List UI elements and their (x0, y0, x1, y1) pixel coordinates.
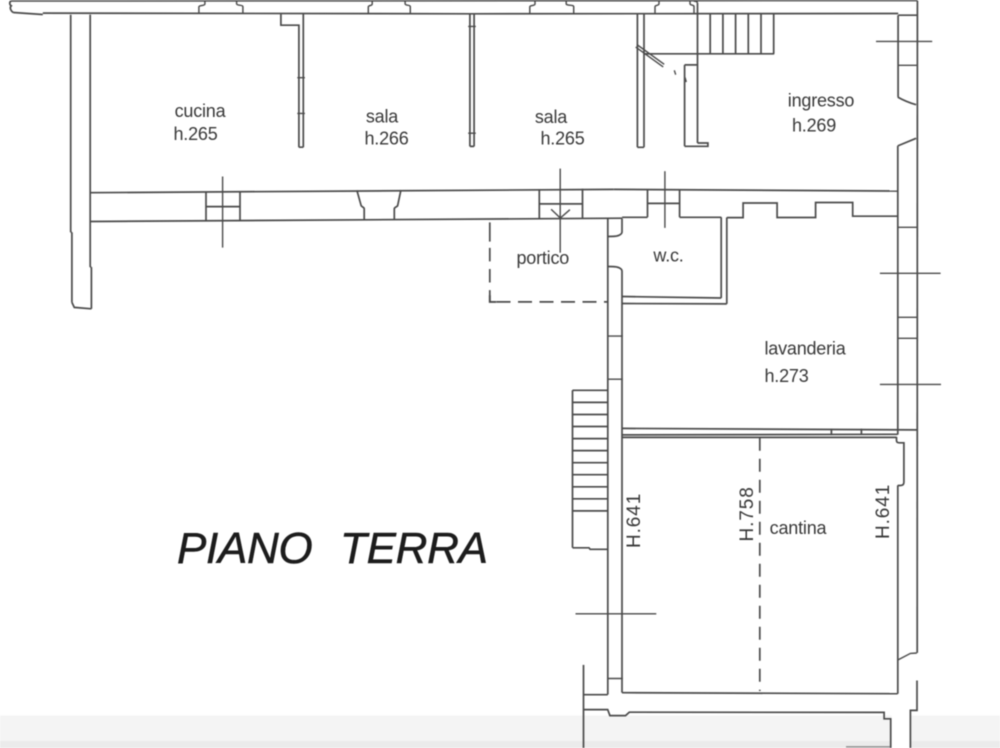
svg-text:h.269: h.269 (792, 116, 836, 136)
svg-text:h.265: h.265 (540, 129, 584, 149)
svg-text:w.c.: w.c. (652, 246, 683, 266)
svg-text:cucina: cucina (175, 101, 227, 121)
svg-text:h.273: h.273 (764, 366, 808, 386)
svg-text:sala: sala (535, 107, 568, 127)
svg-text:H.641: H.641 (873, 484, 894, 539)
svg-text:h.266: h.266 (364, 129, 408, 149)
svg-text:cantina: cantina (770, 518, 828, 538)
svg-text:H.758: H.758 (737, 486, 758, 541)
svg-text:TERRA: TERRA (340, 524, 488, 573)
svg-text:ingresso: ingresso (788, 91, 855, 111)
svg-text:h.265: h.265 (173, 124, 217, 144)
svg-text:lavanderia: lavanderia (764, 339, 846, 359)
svg-text:sala: sala (366, 107, 399, 127)
svg-text:PIANO: PIANO (177, 524, 312, 573)
svg-text:H.641: H.641 (624, 493, 645, 548)
svg-text:portico: portico (516, 248, 569, 268)
